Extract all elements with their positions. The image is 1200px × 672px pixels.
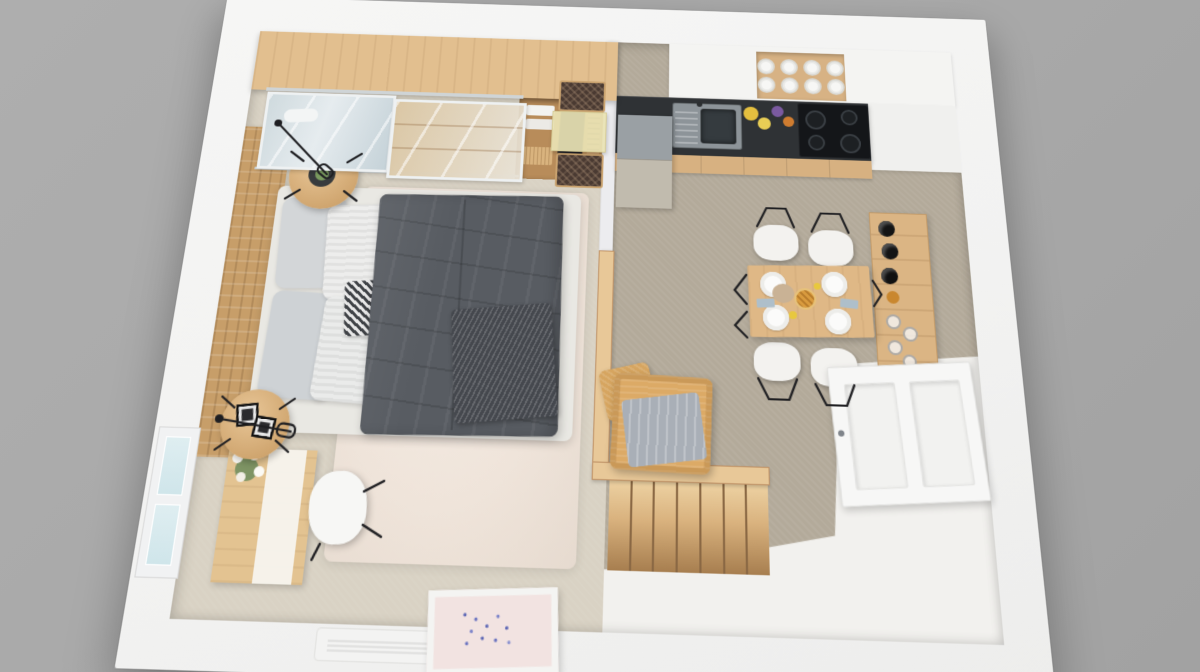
dining-chair-bottom-left [753,342,801,382]
cooktop [797,103,871,159]
dressing-table [551,111,607,153]
refrigerator-front [616,158,672,208]
burner-1 [805,110,826,130]
entry-door [827,362,992,508]
door-panel-2 [909,380,976,488]
cup-5 [758,76,776,93]
mirror-reflection [260,94,394,170]
render-background [0,0,1200,672]
knit-throw [451,303,558,424]
wine-bottle-1 [878,221,896,237]
window-pane-bottom [145,504,181,566]
plate-3 [763,304,790,330]
dressing-stool-top [558,80,606,112]
cup-shelf [756,52,846,102]
cup-7 [804,78,822,95]
stair-step-6 [724,482,746,575]
dining-chair-top-right [808,230,855,267]
folded-linens-2 [525,119,554,130]
window-pane-top [157,436,192,496]
cup-6 [781,77,799,94]
amber-jar [886,291,900,304]
photo-frame-2 [251,415,277,439]
jar-purple [771,106,783,118]
dressing-stool-bottom [555,153,604,189]
stair-step-3 [654,480,676,573]
cup-3 [803,59,821,75]
lavender-artwork-flowers [463,613,466,617]
door-handle [838,430,845,437]
armchair-blanket [621,392,708,468]
staircase [607,478,770,575]
apartment-floor-plan [115,0,1056,672]
cup-2 [780,59,798,75]
refrigerator-top [617,115,672,160]
stair-step-4 [678,480,699,573]
stair-step-5 [701,481,723,574]
burner-2 [840,110,858,126]
wine-bottle-2 [881,243,899,260]
flower-3 [253,466,265,477]
corner-cabinet [868,104,961,173]
wine-bottle-3 [881,268,899,285]
stair-step-7 [747,483,770,576]
sink-basin [700,109,736,145]
dried-flower-centerpiece [772,283,794,303]
napkin-1 [756,298,775,307]
wardrobe-glass-door-right [386,99,527,182]
glass-reflection [389,102,524,180]
lattice-pie [794,288,817,310]
cup-8 [827,78,845,95]
lavender-artwork-frame [426,587,558,672]
jar-yellow-1 [743,107,758,121]
mirror-bed-reflection [284,108,319,122]
dining-chair-top-left [753,224,799,261]
faucet [697,102,703,107]
glass-1 [886,314,902,329]
writing-desk [210,448,317,585]
stair-step-2 [631,479,654,572]
lemon-2 [814,283,821,290]
glass-2 [902,326,918,341]
stair-step-1 [607,478,630,571]
cup-1 [757,58,775,74]
jar-yellow-2 [758,117,771,130]
kitchen-sink [672,103,742,150]
cup-4 [826,60,844,76]
spice-jars [743,103,796,134]
radiator-vent [313,627,445,665]
glass-3 [887,340,903,356]
jar-amber [783,116,795,127]
lemon-1 [789,311,797,319]
burner-4 [840,134,862,154]
refrigerator [616,115,673,209]
burner-3 [808,134,826,150]
storage-basket [521,146,552,165]
sink-drainboard [675,107,698,144]
wardrobe-mirror-door-left [256,92,396,173]
folded-linens-1 [526,105,555,116]
door-panel-1 [844,382,909,490]
vent-slats [327,637,431,655]
